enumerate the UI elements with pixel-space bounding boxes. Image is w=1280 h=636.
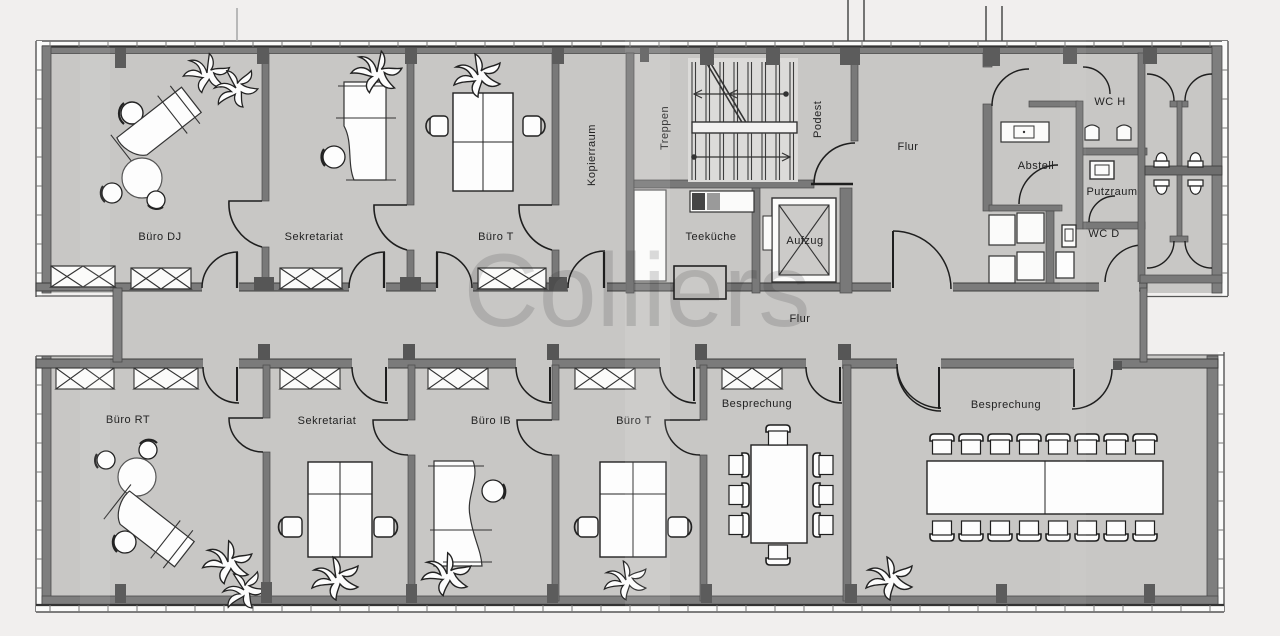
svg-text:Abstell: Abstell bbox=[1018, 160, 1055, 172]
svg-text:Colliers: Colliers bbox=[464, 233, 811, 349]
svg-text:Sekretariat: Sekretariat bbox=[298, 415, 357, 427]
svg-text:WC H: WC H bbox=[1094, 96, 1125, 108]
svg-text:Sekretariat: Sekretariat bbox=[285, 231, 344, 243]
svg-text:Flur: Flur bbox=[898, 141, 919, 153]
svg-text:Besprechung: Besprechung bbox=[722, 398, 792, 410]
svg-text:Podest: Podest bbox=[812, 101, 824, 138]
svg-text:Büro IB: Büro IB bbox=[471, 415, 511, 427]
svg-text:Büro DJ: Büro DJ bbox=[138, 231, 181, 243]
svg-text:Besprechung: Besprechung bbox=[971, 399, 1041, 411]
svg-text:Kopierraum: Kopierraum bbox=[586, 124, 598, 186]
svg-text:Putzraum: Putzraum bbox=[1086, 186, 1137, 198]
svg-text:Büro RT: Büro RT bbox=[106, 414, 150, 426]
svg-text:WC D: WC D bbox=[1088, 228, 1119, 240]
